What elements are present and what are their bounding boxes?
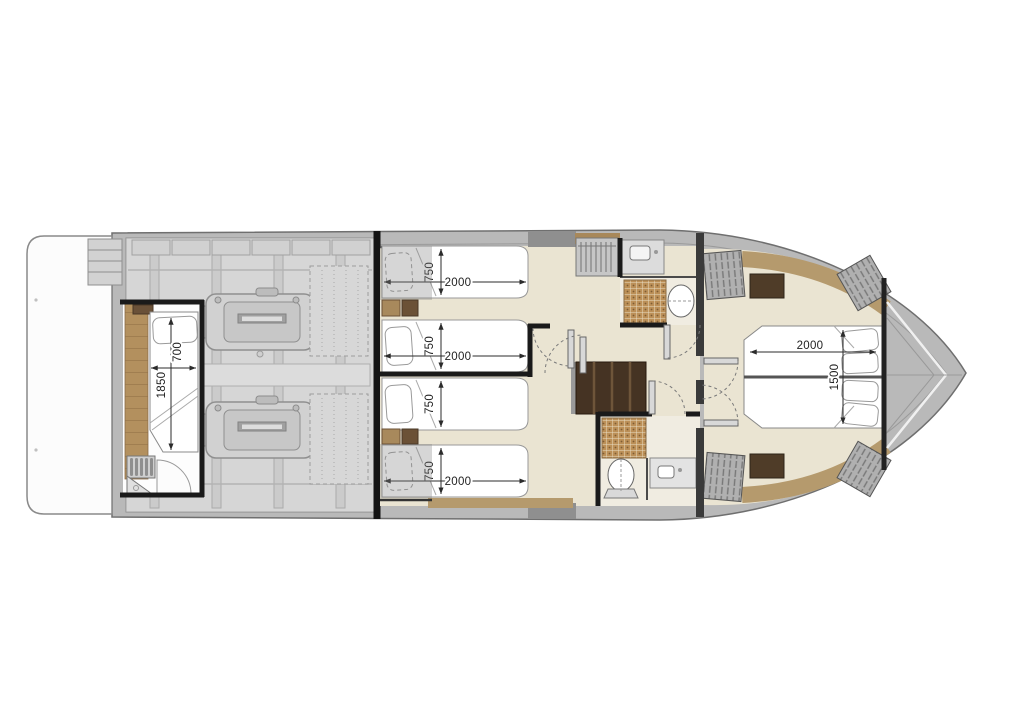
dim-crew-width-label: 700 [172, 342, 184, 362]
crew-bed-pillow [152, 316, 197, 344]
master-nightstand-port [750, 274, 784, 298]
dim-master-width: 1500 [829, 364, 841, 391]
shower-forward [624, 280, 666, 323]
dim-guest1-length: 2000 [445, 277, 472, 289]
bathroom-aft [600, 416, 700, 506]
dim-guest4-length: 2000 [445, 476, 472, 488]
dim-master-length: 2000 [797, 340, 824, 352]
vanity-sink [622, 240, 664, 274]
door-master-starboard [704, 420, 738, 426]
crew-cabin: 1850 700 [120, 300, 204, 497]
door-bathroom-aft [649, 381, 655, 414]
toilet-forward [668, 285, 694, 317]
crew-vent-grill [127, 456, 155, 478]
guest-bed-4: 750 2000 [380, 444, 528, 498]
guest-bed-1: 750 2000 [380, 246, 528, 300]
door-master-port [704, 358, 738, 364]
shower-aft [602, 418, 646, 458]
sink-aft [650, 458, 696, 488]
side-deck-wedge-top [528, 231, 576, 247]
master-wardrobe-port [703, 250, 745, 299]
yacht-floor-plan-page: 1850 700 750 2000 750 [0, 0, 1024, 723]
yacht-floor-plan: 1850 700 750 2000 750 [0, 0, 1024, 723]
dim-crew-length-label: 1850 [156, 372, 168, 399]
dim-guest2-width: 750 [424, 336, 436, 356]
master-wardrobe-starboard [703, 452, 745, 501]
door-guest1 [568, 330, 574, 368]
hanging-locker [576, 238, 618, 276]
door-guest2 [580, 337, 586, 373]
dim-guest3-width: 750 [424, 394, 436, 414]
transom-steps [88, 239, 122, 285]
master-nightstand-starboard [750, 454, 784, 478]
dim-guest2-length: 2000 [445, 351, 472, 363]
guest-bed-2: 750 2000 [382, 320, 528, 372]
tan-trim-bottom [428, 498, 573, 508]
door-bathroom-forward [664, 325, 670, 359]
guest-bed-3: 750 [382, 378, 528, 430]
master-cabin: 2000 1500 [703, 249, 891, 505]
crew-cabin-teak-floor [125, 303, 148, 479]
